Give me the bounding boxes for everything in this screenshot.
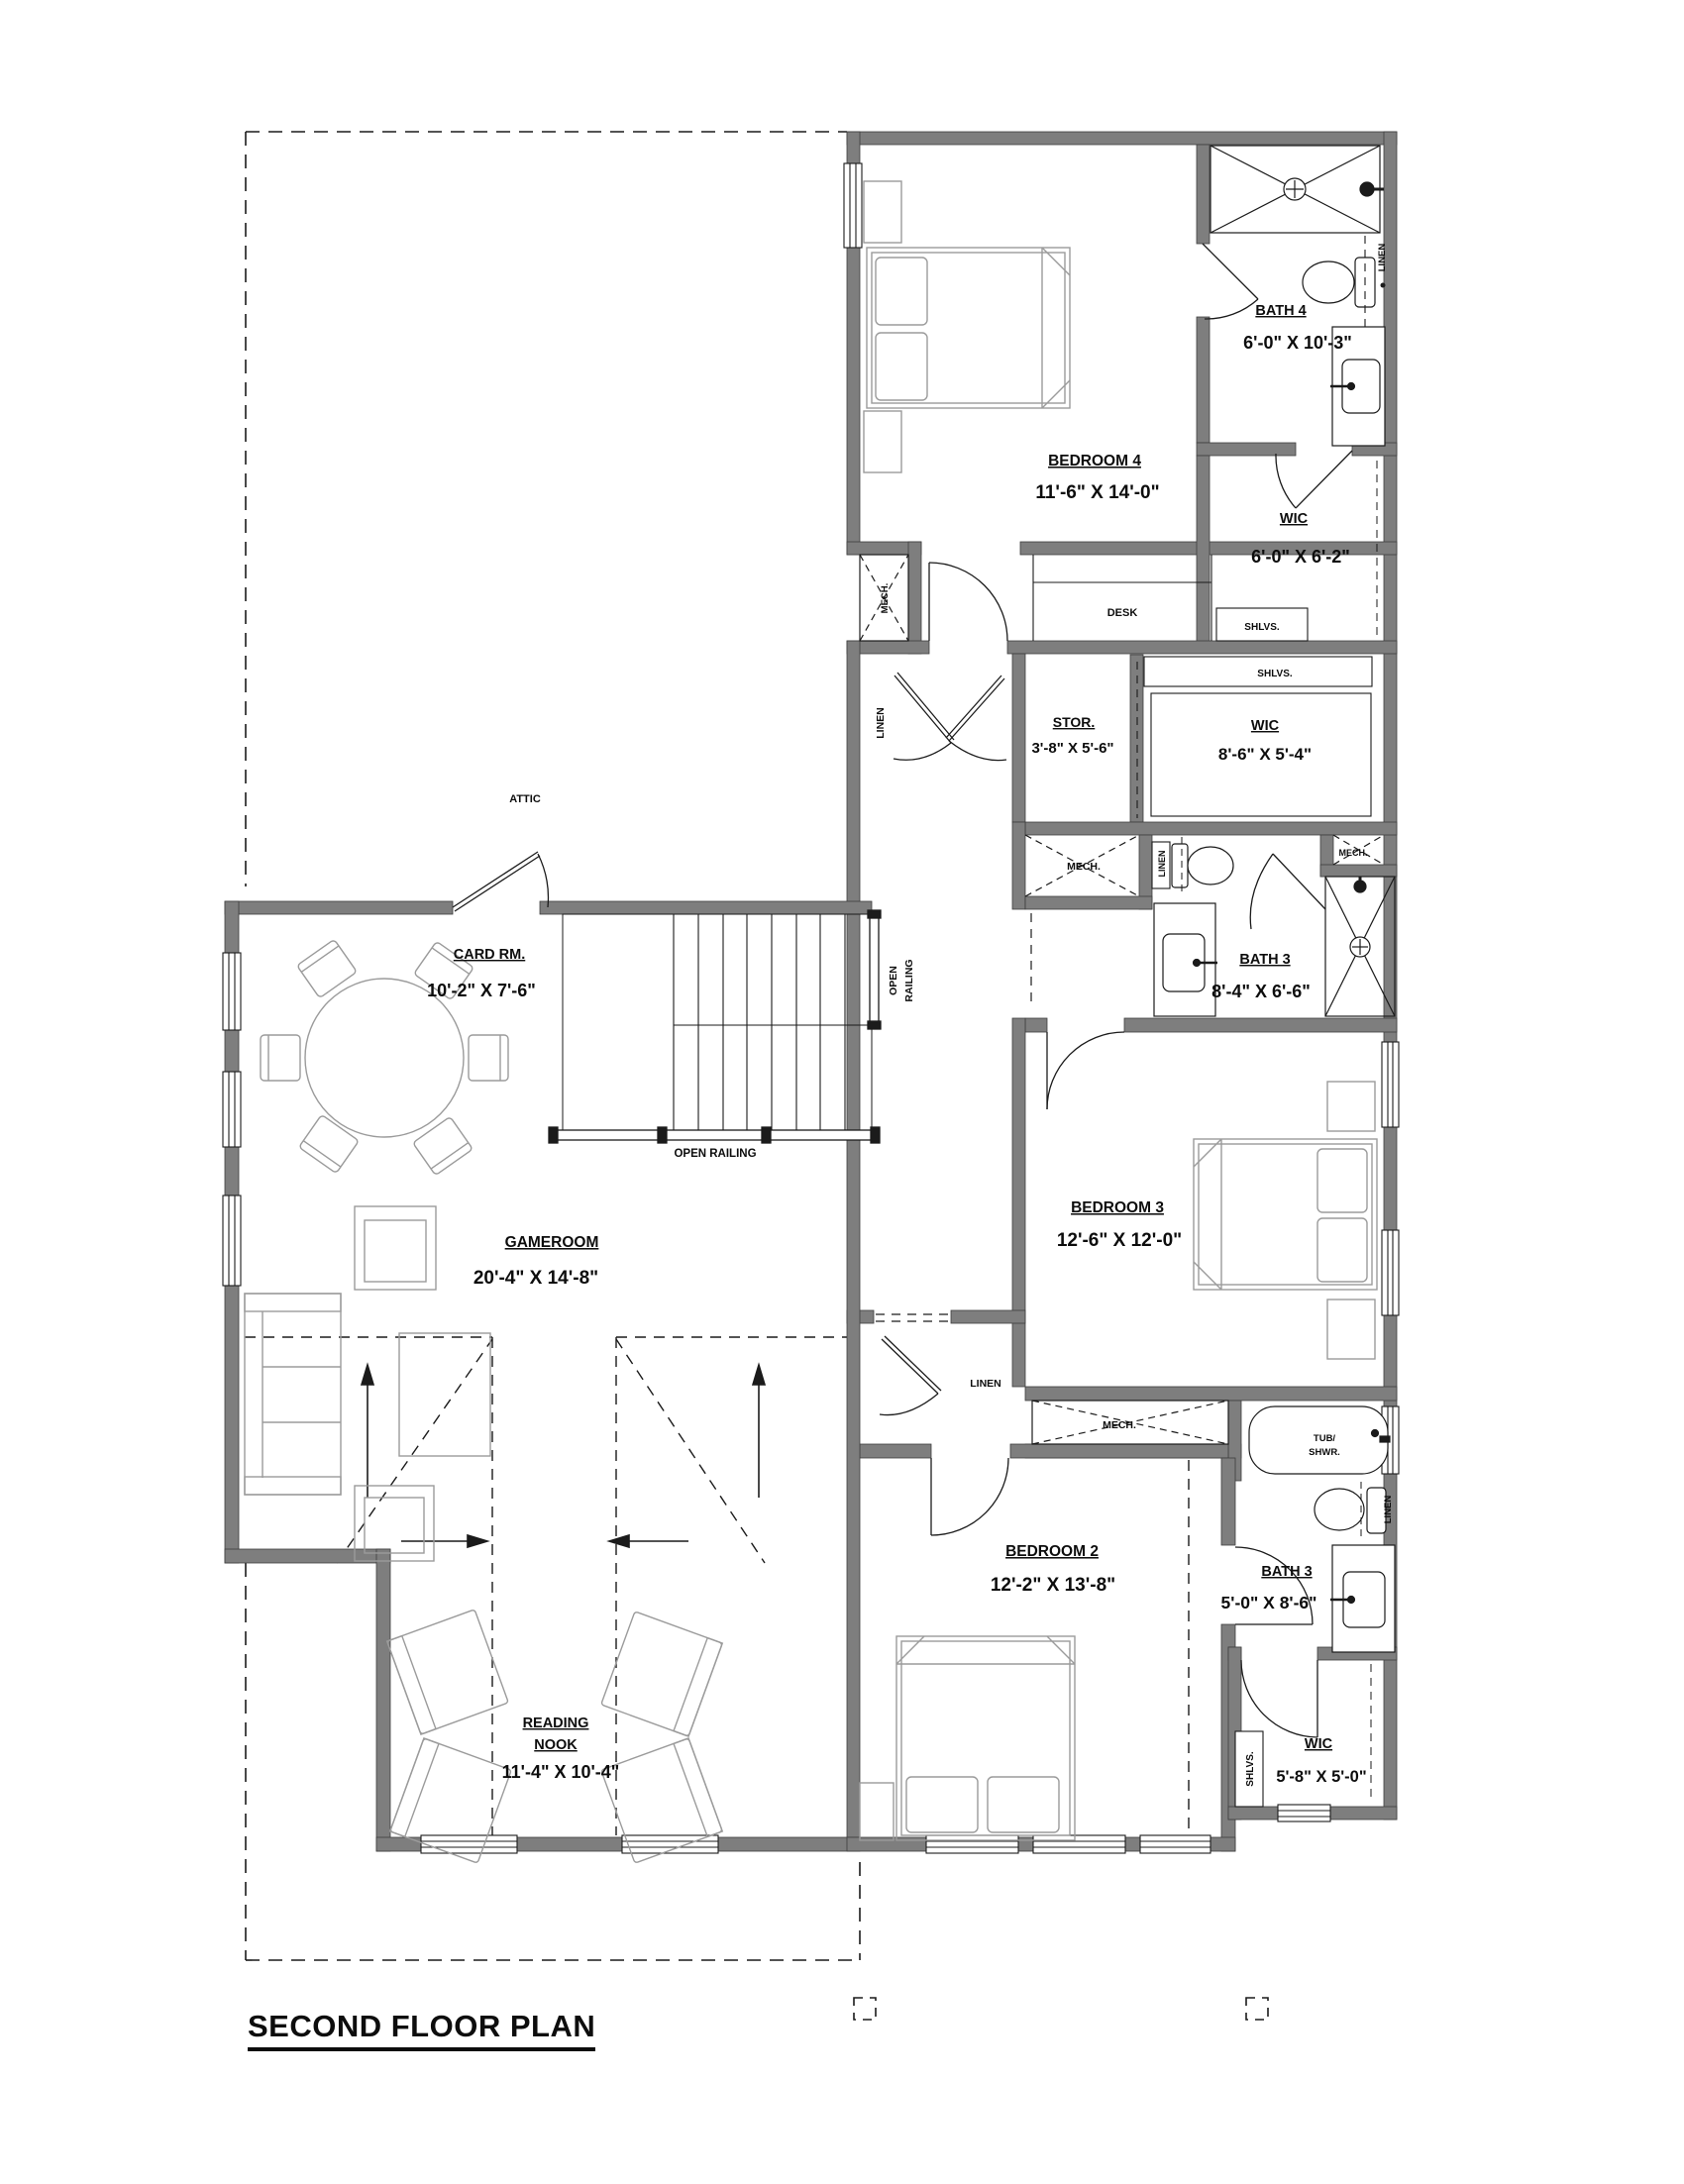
room-dims-bath4: 6'-0" X 10'-3" <box>1243 333 1352 353</box>
door-bedroom4 <box>929 563 1007 641</box>
shower-bath4 <box>1210 146 1384 233</box>
label-mech-hall: MECH. <box>1067 861 1101 873</box>
bed-bedroom2 <box>860 1636 1075 1840</box>
shower-head-icon <box>1360 182 1374 196</box>
door-bedroom2 <box>931 1458 1008 1535</box>
room-label-wic-hall: WIC <box>1251 718 1280 734</box>
room-label-wic-bed2: WIC <box>1305 1736 1333 1752</box>
room-label-card-room: CARD RM. <box>454 947 526 963</box>
room-label-bedroom4: BEDROOM 4 <box>1048 453 1141 469</box>
room-dims-bedroom4: 11'-6" X 14'-0" <box>1035 482 1159 503</box>
window-bedroom2-south-1 <box>926 1835 1018 1853</box>
label-linen-lower: LINEN <box>970 1378 1001 1390</box>
door-bath3-bed2 <box>1235 1547 1313 1624</box>
toilet-bath4 <box>1303 258 1375 307</box>
nightstand <box>1327 1082 1375 1131</box>
room-dims-wic-hall: 8'-6" X 5'-4" <box>1218 745 1312 764</box>
nightstand <box>860 1783 894 1840</box>
room-label-bedroom3: BEDROOM 3 <box>1071 1199 1164 1216</box>
sofa <box>245 1294 341 1495</box>
window-bedroom4-west <box>844 163 862 248</box>
room-label-gameroom: GAMEROOM <box>505 1234 599 1251</box>
door-linen-vestibule <box>894 673 1006 761</box>
nightstand <box>864 181 901 243</box>
door-bedroom3 <box>1047 1032 1124 1109</box>
open-railing-south <box>549 1127 880 1143</box>
room-label-bath3-hall: BATH 3 <box>1239 952 1290 968</box>
label-linen-vestibule: LINEN <box>875 707 887 739</box>
label-shlvs-wic-hall: SHLVS. <box>1257 669 1293 679</box>
label-linen-bath3-hall: LINEN <box>1157 851 1167 878</box>
window-bedroom3-east-2 <box>1382 1230 1399 1315</box>
shower-head-icon <box>1354 881 1366 892</box>
label-open-railing-vert-2: RAILING <box>903 959 915 1001</box>
nightstand <box>864 411 901 472</box>
window-bedroom2-south-3 <box>1140 1835 1210 1853</box>
room-label-bath3-bed2: BATH 3 <box>1261 1564 1312 1580</box>
stair-railing-east <box>868 910 881 1029</box>
desk-niche <box>1033 555 1211 641</box>
staircase <box>563 914 872 1137</box>
window-wic2-south <box>1278 1805 1330 1821</box>
labels: BEDROOM 4 11'-6" X 14'-0" BATH 4 6'-0" X… <box>427 244 1394 1787</box>
room-dims-bedroom2: 12'-2" X 13'-8" <box>991 1575 1115 1596</box>
label-shlvs-wic2: SHLVS. <box>1245 1751 1256 1787</box>
label-linen-bath4: LINEN <box>1377 244 1388 272</box>
window-gameroom-west <box>223 1196 241 1286</box>
toilet-bath3-bed2 <box>1315 1488 1386 1533</box>
door-bath4 <box>1203 244 1258 319</box>
window-bedroom2-south-2 <box>1033 1835 1125 1853</box>
ottoman-table <box>399 1333 490 1456</box>
match-mark-right <box>1246 1998 1268 2020</box>
label-shlvs-desk: SHLVS. <box>1244 622 1280 633</box>
label-mech-bedroom4: MECH. <box>880 583 891 614</box>
toilet-bath3-hall <box>1172 844 1233 887</box>
roof-outline-dashed <box>246 132 860 1960</box>
label-open-railing-horiz: OPEN RAILING <box>674 1148 756 1160</box>
door-linen-lower <box>880 1336 941 1415</box>
window-bedroom3-east-1 <box>1382 1042 1399 1127</box>
room-dims-bedroom3: 12'-6" X 12'-0" <box>1057 1230 1182 1251</box>
window-cardroom-west-2 <box>223 1072 241 1147</box>
floor-plan-svg: BEDROOM 4 11'-6" X 14'-0" BATH 4 6'-0" X… <box>0 0 1684 2179</box>
vanity-bath3-bed2 <box>1330 1545 1395 1652</box>
room-dims-wic-bed2: 5'-8" X 5'-0" <box>1276 1768 1366 1786</box>
floor-plan: BEDROOM 4 11'-6" X 14'-0" BATH 4 6'-0" X… <box>0 0 1684 2184</box>
match-mark-left <box>854 1998 876 2020</box>
room-label-stor: STOR. <box>1053 714 1096 730</box>
bed-bedroom3 <box>1194 1082 1377 1359</box>
label-tub-line2: SHWR. <box>1309 1447 1340 1458</box>
room-dims-nook: 11'-4" X 10'-4" <box>502 1762 620 1782</box>
label-mech-bath3: MECH. <box>1339 848 1368 858</box>
label-tub-line1: TUB/ <box>1314 1433 1336 1444</box>
window-cardroom-west-1 <box>223 953 241 1030</box>
room-label-nook-line2: NOOK <box>534 1737 578 1753</box>
room-label-bath4: BATH 4 <box>1255 303 1306 319</box>
door-shower-bath3 <box>1250 854 1325 929</box>
door-wic2 <box>1241 1660 1317 1737</box>
label-open-railing-vert-1: OPEN <box>888 966 899 995</box>
vanity-bath3-hall <box>1154 903 1217 1016</box>
linen-dot-bath4 <box>1381 283 1386 288</box>
nook-chairs <box>387 1610 723 1863</box>
room-dims-bath3-hall: 8'-4" X 6'-6" <box>1211 982 1311 1001</box>
armchair <box>355 1206 436 1290</box>
door-wic-bath4 <box>1276 451 1352 508</box>
door-attic <box>453 852 548 911</box>
label-mech-long: MECH. <box>1103 1419 1136 1431</box>
room-dims-gameroom: 20'-4" X 14'-8" <box>474 1268 598 1289</box>
room-dims-card-room: 10'-2" X 7'-6" <box>427 981 536 1000</box>
wic-hall-interior <box>1137 657 1372 818</box>
room-dims-stor: 3'-8" X 5'-6" <box>1031 740 1113 757</box>
window-nook-south-1 <box>421 1835 517 1853</box>
room-dims-wic-bath4: 6'-0" X 6'-2" <box>1251 547 1350 567</box>
room-label-wic-bath4: WIC <box>1280 511 1309 527</box>
room-label-bedroom2: BEDROOM 2 <box>1005 1543 1099 1560</box>
label-attic: ATTIC <box>509 793 541 805</box>
label-linen-bath3-bed2: LINEN <box>1383 1496 1394 1524</box>
bed-bedroom4 <box>864 181 1070 472</box>
room-label-nook-line1: READING <box>523 1716 589 1731</box>
nightstand <box>1327 1300 1375 1359</box>
card-chairs <box>261 939 508 1175</box>
plan-title: SECOND FLOOR PLAN <box>248 2009 595 2051</box>
label-desk: DESK <box>1107 607 1138 619</box>
card-table <box>261 939 508 1175</box>
room-dims-bath3-bed2: 5'-0" X 8'-6" <box>1221 1593 1317 1612</box>
